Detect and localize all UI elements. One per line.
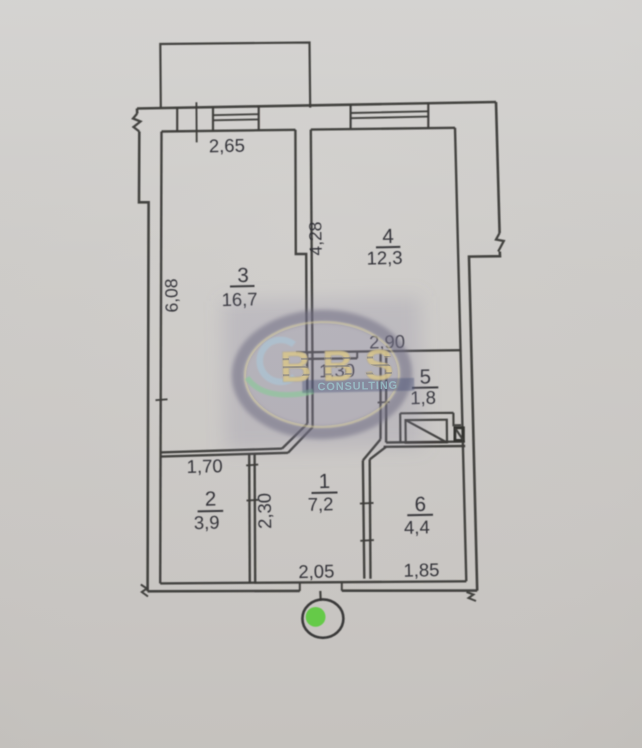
svg-text:4,4: 4,4 <box>404 516 430 538</box>
svg-text:6: 6 <box>414 493 426 516</box>
svg-text:2,65: 2,65 <box>209 135 245 157</box>
svg-text:3: 3 <box>237 264 249 287</box>
svg-text:1,70: 1,70 <box>186 455 222 477</box>
svg-text:1,85: 1,85 <box>403 559 439 581</box>
svg-text:6,08: 6,08 <box>161 278 182 312</box>
svg-text:4: 4 <box>382 225 394 248</box>
svg-text:CONSULTING: CONSULTING <box>317 380 398 394</box>
svg-text:2,05: 2,05 <box>298 560 334 582</box>
svg-text:1: 1 <box>319 470 331 493</box>
svg-text:2,30: 2,30 <box>254 493 276 529</box>
svg-text:4,28: 4,28 <box>305 221 326 255</box>
svg-text:3,9: 3,9 <box>194 512 220 534</box>
svg-text:2: 2 <box>205 487 217 510</box>
svg-text:12,3: 12,3 <box>366 247 402 269</box>
svg-text:7,2: 7,2 <box>307 493 333 515</box>
